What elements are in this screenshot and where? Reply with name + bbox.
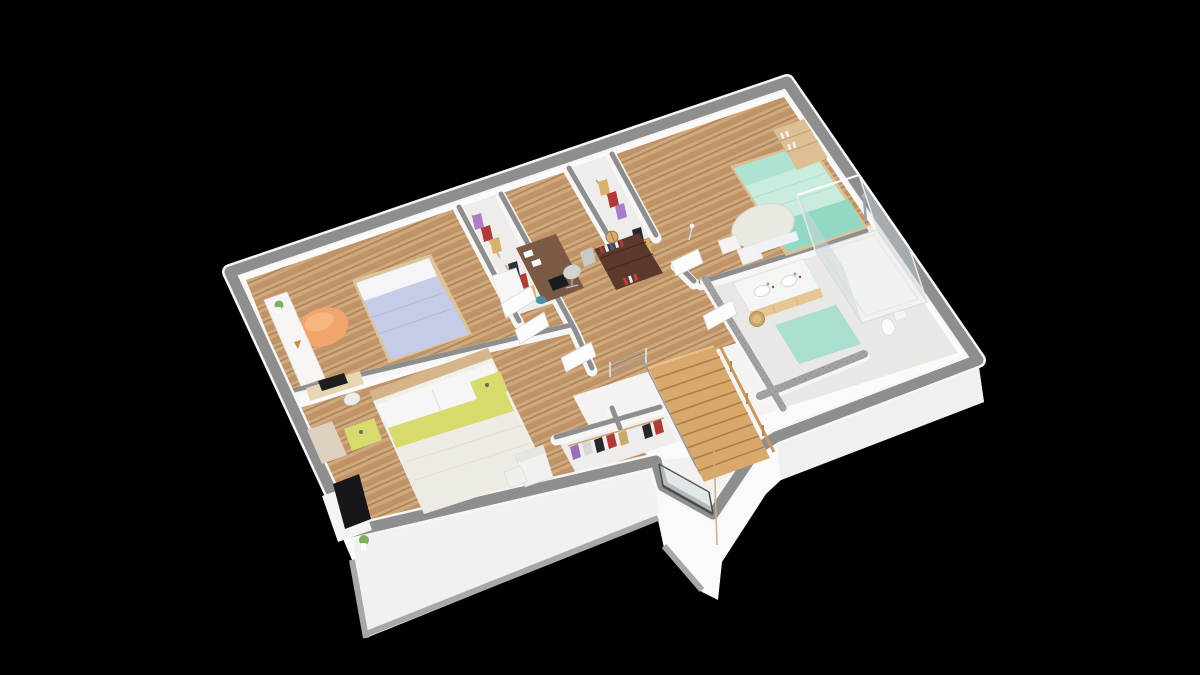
master-plant-vase [361, 543, 366, 550]
wicker-basket-top [753, 315, 762, 324]
soap-red-1 [772, 286, 774, 288]
teal-stool [536, 296, 547, 304]
nightstand-right-knob [485, 383, 489, 387]
floor-lamp-head [690, 224, 695, 229]
plant-pot [276, 307, 281, 313]
floorplan-3d-scene[interactable] [0, 0, 1200, 675]
floorplan-3d-viewport[interactable] [0, 0, 1200, 675]
faucet-right [794, 273, 797, 276]
nightstand-left-knob [359, 430, 363, 434]
soap-red-2 [799, 276, 801, 278]
pendant-cord-knot [714, 499, 717, 502]
faucet-left [767, 283, 770, 286]
globe [606, 231, 618, 243]
